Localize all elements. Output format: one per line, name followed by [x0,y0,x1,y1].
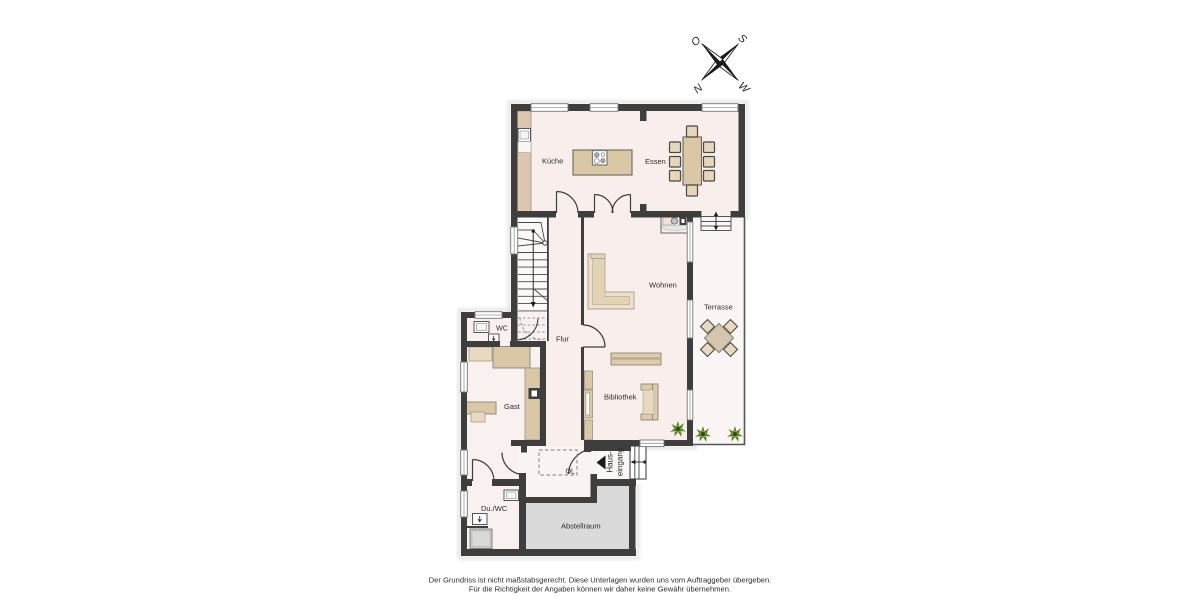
svg-text:Für die Richtigkeit der Angabe: Für die Richtigkeit der Angaben können w… [469,585,731,594]
svg-text:OL: OL [566,469,575,476]
svg-text:Abstellraum: Abstellraum [561,522,601,531]
svg-text:Du./WC: Du./WC [481,504,508,513]
svg-text:Wohnen: Wohnen [649,281,677,290]
svg-text:Haus-: Haus- [606,451,615,473]
svg-text:Gast: Gast [504,402,521,411]
svg-text:eingang: eingang [616,448,625,476]
svg-text:Küche: Küche [542,157,563,166]
svg-text:Bibliothek: Bibliothek [604,393,637,402]
svg-text:Terrasse: Terrasse [704,303,733,312]
svg-text:Der Grundriss ist nicht maßsta: Der Grundriss ist nicht maßstabsgerecht.… [429,576,772,585]
svg-text:Essen: Essen [645,157,666,166]
svg-text:WC: WC [496,324,508,333]
svg-text:Flur: Flur [556,335,569,344]
